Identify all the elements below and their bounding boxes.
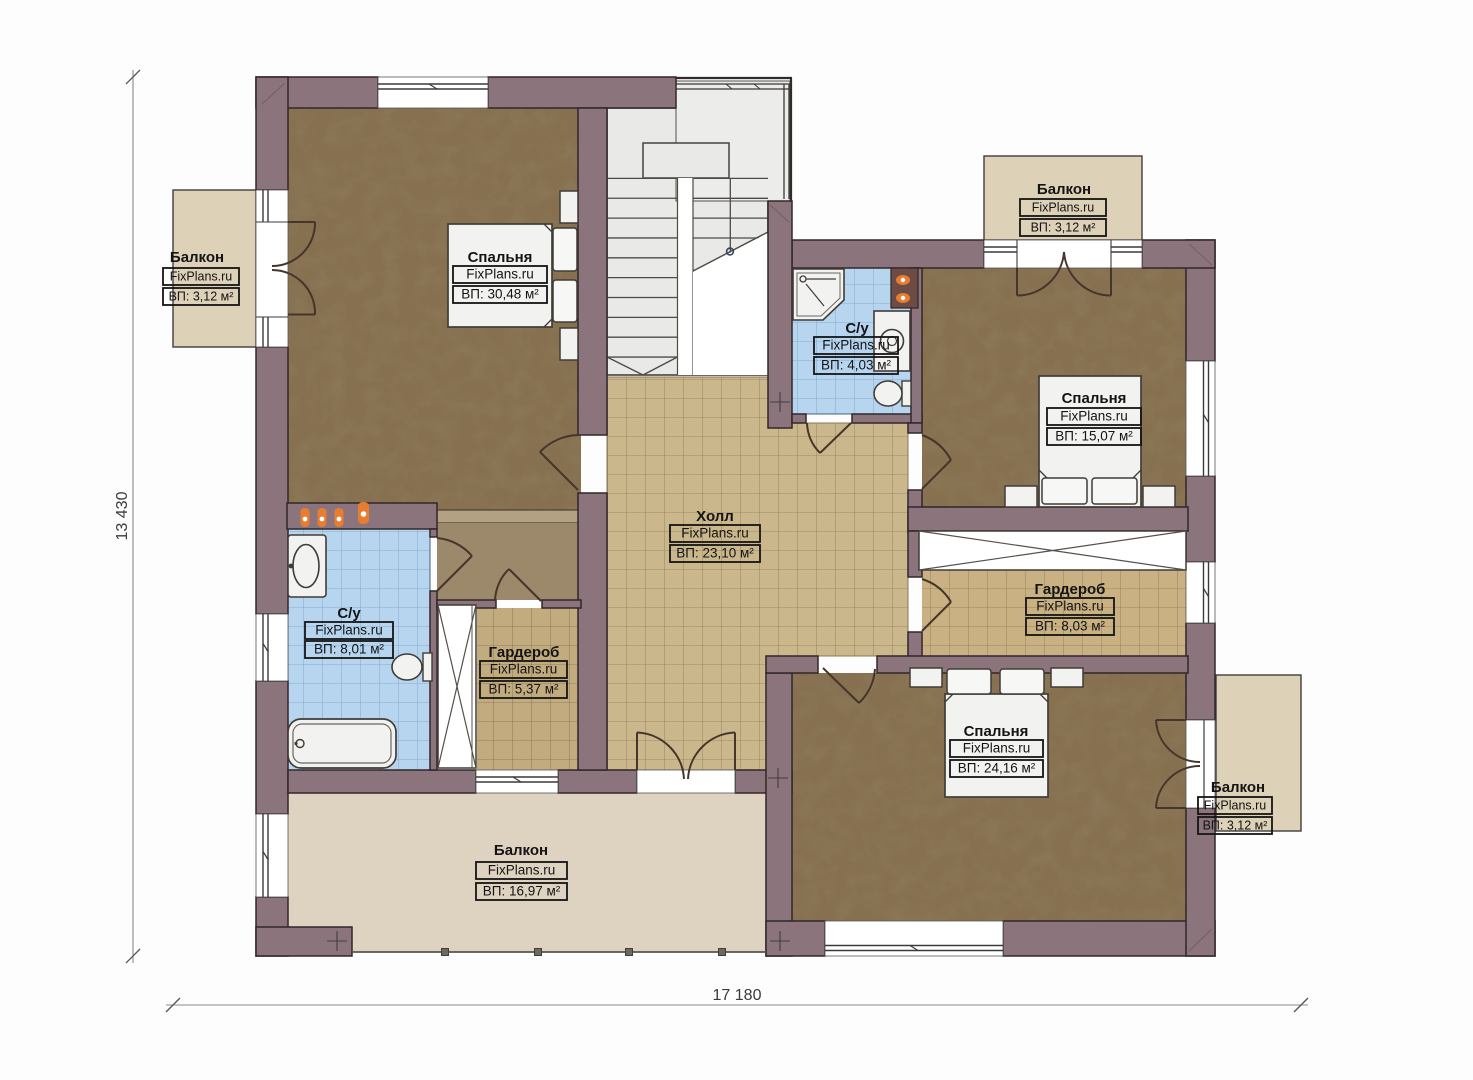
svg-text:ВП: 3,12 м²: ВП: 3,12 м² <box>1203 819 1268 833</box>
svg-text:FixPlans.ru: FixPlans.ru <box>170 270 233 284</box>
svg-text:Гардероб: Гардероб <box>489 644 560 661</box>
svg-text:FixPlans.ru: FixPlans.ru <box>822 338 890 353</box>
svg-text:Балкон: Балкон <box>1037 181 1091 198</box>
svg-text:С/у: С/у <box>845 320 869 337</box>
svg-text:С/у: С/у <box>337 605 361 622</box>
svg-text:ВП: 15,07 м²: ВП: 15,07 м² <box>1055 429 1133 444</box>
svg-text:ВП: 8,03 м²: ВП: 8,03 м² <box>1035 619 1106 634</box>
svg-text:Балкон: Балкон <box>170 249 224 266</box>
svg-text:FixPlans.ru: FixPlans.ru <box>1032 201 1095 215</box>
svg-text:FixPlans.ru: FixPlans.ru <box>1204 799 1267 813</box>
svg-text:ВП: 3,12 м²: ВП: 3,12 м² <box>169 290 234 304</box>
svg-text:ВП: 3,12 м²: ВП: 3,12 м² <box>1031 221 1096 235</box>
svg-text:FixPlans.ru: FixPlans.ru <box>315 623 383 638</box>
svg-text:17 180: 17 180 <box>713 987 762 1004</box>
svg-text:ВП: 5,37 м²: ВП: 5,37 м² <box>488 682 559 697</box>
svg-text:Холл: Холл <box>696 508 734 525</box>
svg-text:ВП: 4,03 м²: ВП: 4,03 м² <box>821 358 892 373</box>
svg-text:13 430: 13 430 <box>114 491 131 540</box>
svg-text:ВП: 30,48 м²: ВП: 30,48 м² <box>461 287 539 302</box>
svg-text:Балкон: Балкон <box>494 842 548 859</box>
svg-text:FixPlans.ru: FixPlans.ru <box>1036 599 1104 614</box>
svg-text:ВП: 24,16 м²: ВП: 24,16 м² <box>958 761 1036 776</box>
svg-text:Спальня: Спальня <box>964 723 1029 740</box>
svg-text:ВП: 16,97 м²: ВП: 16,97 м² <box>483 884 561 899</box>
svg-text:Гардероб: Гардероб <box>1035 581 1106 598</box>
svg-text:FixPlans.ru: FixPlans.ru <box>490 662 558 677</box>
svg-text:FixPlans.ru: FixPlans.ru <box>1060 409 1128 424</box>
svg-text:FixPlans.ru: FixPlans.ru <box>488 863 556 878</box>
svg-text:FixPlans.ru: FixPlans.ru <box>681 526 749 541</box>
svg-text:FixPlans.ru: FixPlans.ru <box>963 741 1031 756</box>
svg-text:Спальня: Спальня <box>468 249 533 266</box>
svg-text:ВП: 8,01 м²: ВП: 8,01 м² <box>314 642 385 657</box>
svg-text:ВП: 23,10 м²: ВП: 23,10 м² <box>676 546 754 561</box>
svg-text:FixPlans.ru: FixPlans.ru <box>466 267 534 282</box>
svg-text:Спальня: Спальня <box>1062 390 1127 407</box>
svg-text:Балкон: Балкон <box>1211 779 1265 796</box>
